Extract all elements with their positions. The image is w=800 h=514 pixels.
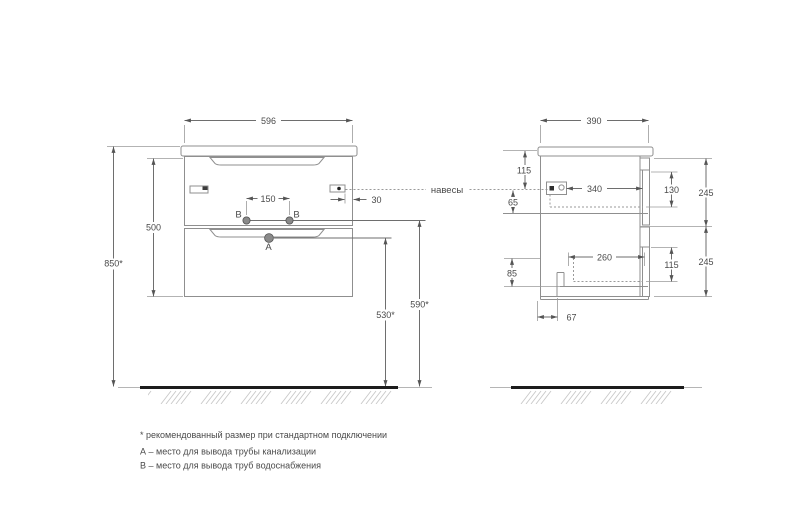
dim-drawer2-inner-height: 115 <box>646 248 683 282</box>
side-drawer2-interior <box>504 258 648 287</box>
dim-drain-height: 530* <box>370 238 401 387</box>
dim-top-to-hanger-label: 115 <box>517 165 531 175</box>
front-drawer-1 <box>185 157 353 226</box>
side-view: 390 115 <box>503 116 718 323</box>
front-countertop <box>181 146 357 156</box>
floor-right <box>490 388 702 405</box>
dim-notch-offset: 67 <box>538 298 577 322</box>
floor-hatching-left <box>148 389 392 404</box>
dim-side-depth-label: 390 <box>586 116 601 126</box>
supply-label-right: B <box>293 210 299 221</box>
dim-supply-height: 590* <box>404 221 435 387</box>
floor-left <box>118 388 432 405</box>
side-countertop <box>538 147 653 156</box>
dim-front-width: 596 <box>185 116 353 144</box>
dim-drawer1-inner-height: 130 <box>646 172 683 207</box>
note-asterisk: * рекомендованный размер при стандартном… <box>140 430 387 440</box>
dim-bottom-clearance: 85 <box>504 259 521 287</box>
dim-drain-height-label: 530* <box>376 310 395 320</box>
dim-drawer2-depth-label: 260 <box>597 252 612 262</box>
side-drawer1-interior <box>503 195 648 214</box>
dim-drawer1-inner-height-label: 130 <box>664 185 679 195</box>
dim-front-width-label: 596 <box>261 116 276 126</box>
notes: * рекомендованный размер при стандартном… <box>140 430 387 471</box>
dim-drawer2-inner-height-label: 115 <box>664 260 678 270</box>
floor-hatching-right <box>518 389 678 404</box>
dim-notch-offset-label: 67 <box>567 312 577 322</box>
vanity-technical-drawing: 596 850* 500 B B 150 <box>0 0 800 514</box>
dim-drawer2-front-height-label: 245 <box>698 257 713 267</box>
drain-label: A <box>265 242 272 253</box>
dim-hanger-to-shelf-label: 65 <box>508 197 518 207</box>
drawing-svg: 596 850* 500 B B 150 <box>0 0 800 514</box>
front-view: 596 850* 500 B B 150 <box>99 116 436 387</box>
dim-supply-height-label: 590* <box>410 300 429 310</box>
pipe-notch <box>557 273 564 297</box>
side-handle-groove-2 <box>640 227 650 247</box>
dim-front-body-height: 500 <box>140 159 183 297</box>
dim-hanger-offset-label: 30 <box>372 195 382 205</box>
dim-drawer2-depth: 260 <box>569 252 645 266</box>
dim-drawer1-front-height-label: 245 <box>698 188 713 198</box>
supply-label-left: B <box>235 210 241 221</box>
dim-supply-spacing-label: 150 <box>260 194 275 204</box>
dim-bottom-clearance-label: 85 <box>507 268 517 278</box>
note-drain: А – место для вывода трубы канализации <box>140 447 316 457</box>
hangers-label: навесы <box>431 185 464 196</box>
side-hanger-bracket <box>547 182 567 195</box>
supply-pipe-left <box>243 217 250 224</box>
dim-side-depth: 390 <box>541 116 649 144</box>
dim-front-total-height-label: 850* <box>104 259 123 269</box>
dim-top-to-hanger: 115 <box>503 151 537 190</box>
dim-drawer1-depth: 340 <box>567 184 643 194</box>
note-supply: В – место для вывода труб водоснабжения <box>140 461 321 471</box>
side-handle-groove-1 <box>640 158 650 170</box>
dim-drawer1-depth-label: 340 <box>587 184 602 194</box>
hangers-callout: навесы <box>346 184 552 196</box>
dim-hanger-to-shelf: 65 <box>504 191 522 214</box>
dim-front-total-height: 850* <box>99 147 181 387</box>
supply-pipe-right <box>286 217 293 224</box>
dim-front-body-height-label: 500 <box>146 223 161 233</box>
